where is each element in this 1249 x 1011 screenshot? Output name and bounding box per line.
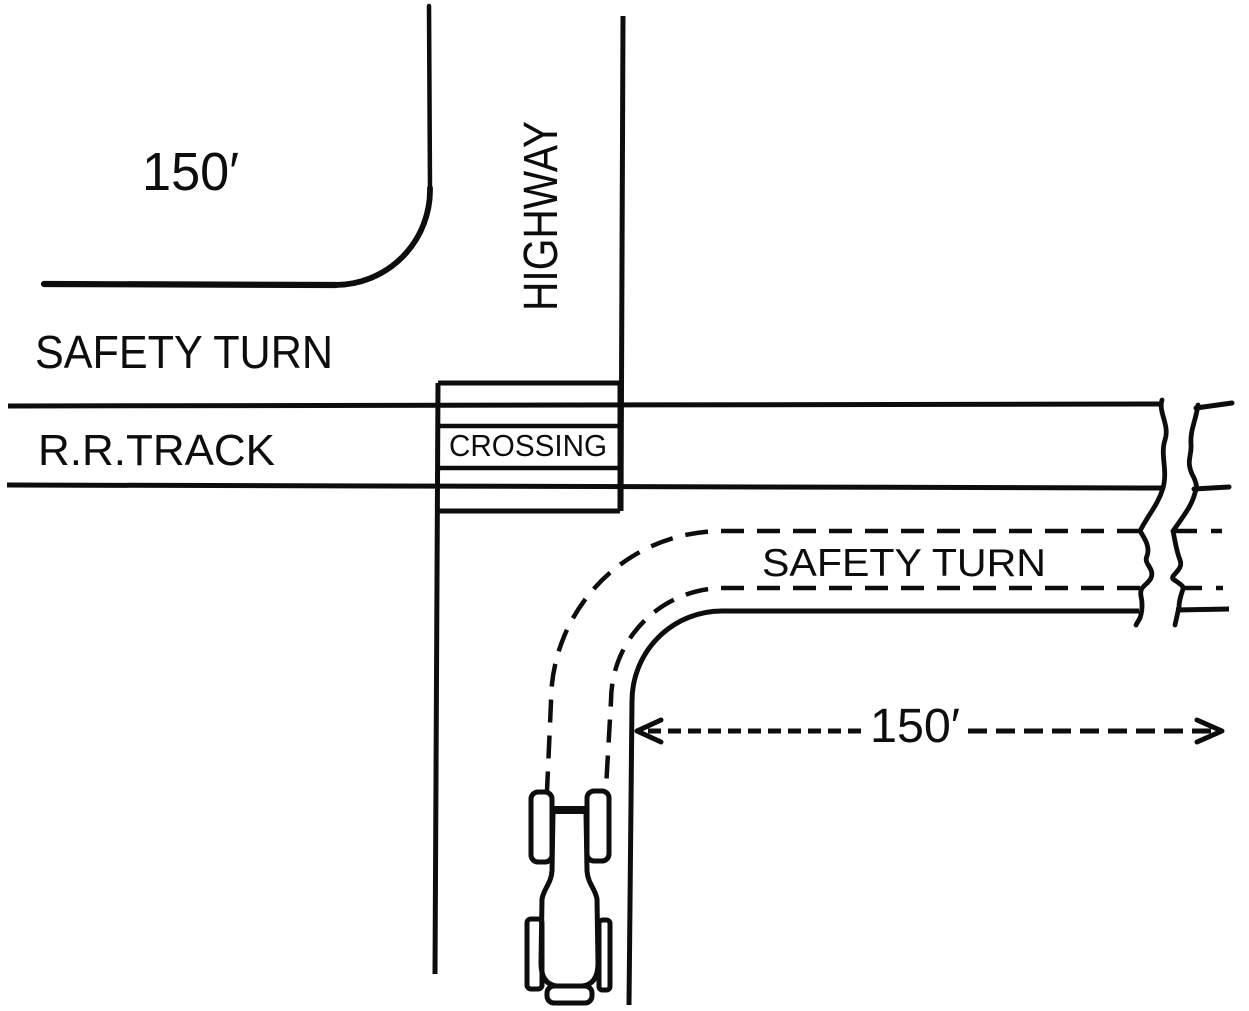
svg-text:150′: 150′ bbox=[142, 142, 239, 202]
svg-text:HIGHWAY: HIGHWAY bbox=[515, 121, 568, 311]
svg-text:SAFETY TURN: SAFETY TURN bbox=[762, 542, 1046, 585]
svg-text:CROSSING: CROSSING bbox=[449, 428, 607, 463]
svg-text:150′: 150′ bbox=[870, 700, 960, 753]
svg-text:R.R.TRACK: R.R.TRACK bbox=[38, 426, 275, 475]
svg-text:SAFETY TURN: SAFETY TURN bbox=[35, 326, 333, 378]
